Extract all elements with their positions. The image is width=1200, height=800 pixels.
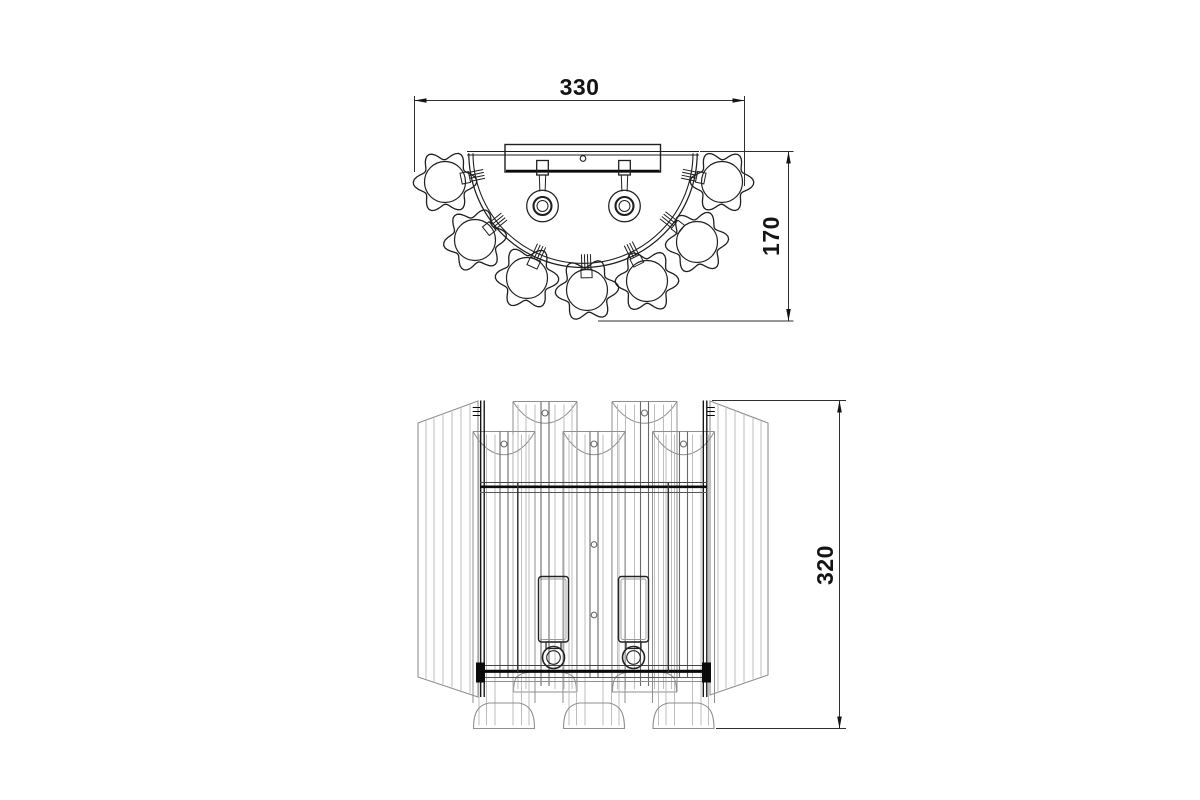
- clamp-tick: [470, 178, 485, 181]
- dimension-arrow: [837, 401, 842, 413]
- shade-bottom-dome: [474, 703, 535, 729]
- clamp-tick: [540, 247, 546, 261]
- mounting-bar: [505, 145, 661, 173]
- socket-stem: [627, 175, 628, 192]
- shade-bottom-dome: [653, 703, 714, 729]
- hanger-hole: [591, 542, 597, 548]
- dimension-label-width: 330: [560, 74, 600, 100]
- socket-stem-block: [619, 161, 631, 176]
- lamp-socket-ring: [616, 197, 634, 215]
- hanger-hole: [501, 441, 507, 447]
- candle-tube: [619, 577, 649, 643]
- flower-shade: [615, 253, 679, 310]
- candle-tube-inner: [541, 579, 566, 640]
- flower-shade-opening: [425, 162, 466, 203]
- clamp-tick: [470, 175, 485, 178]
- lamp-socket-inner: [537, 201, 548, 212]
- clamp-tick: [681, 178, 696, 181]
- pleated-shade-outer_right: [710, 401, 768, 695]
- bar-end-cap: [702, 663, 711, 683]
- shade-bottom-dome: [564, 703, 625, 729]
- mounting-hole: [580, 156, 586, 162]
- lamp-socket-ring: [534, 197, 552, 215]
- flower-shade-opening: [567, 270, 608, 311]
- flower-shade-opening: [627, 261, 668, 302]
- clamp-tick: [537, 246, 543, 260]
- hanger-hole: [681, 441, 687, 447]
- bar-end-cap: [476, 663, 485, 683]
- dimension-arrow: [415, 98, 427, 103]
- dimension-arrow: [733, 98, 745, 103]
- dimension-arrow: [786, 309, 791, 321]
- dimension-label-height: 320: [812, 545, 838, 585]
- hanger-hole: [542, 410, 548, 416]
- flower-shade-opening: [455, 220, 496, 261]
- flower-shade-opening: [702, 162, 743, 203]
- dimension-label-depth: 170: [758, 216, 784, 256]
- hanger-hole: [642, 410, 648, 416]
- front-view: [418, 401, 768, 729]
- socket-stem-block: [537, 161, 549, 176]
- socket-stem: [621, 175, 622, 192]
- dimension-arrow: [837, 717, 842, 729]
- hanger-hole: [591, 612, 597, 618]
- socket-stem: [545, 175, 546, 192]
- dimension-arrow: [786, 152, 791, 164]
- bulb-holder-inner: [627, 651, 641, 665]
- pleated-shade-outer_left: [418, 401, 478, 697]
- lamp-socket-inner: [619, 201, 630, 212]
- lamp-socket-outer: [609, 190, 641, 222]
- top-view: [413, 145, 754, 320]
- drawing-canvas: 330 170 320: [0, 0, 1200, 800]
- technical-drawing: 330 170 320: [0, 0, 1200, 800]
- clamp-body: [695, 171, 706, 183]
- socket-stem: [539, 175, 540, 192]
- lamp-socket-outer: [527, 190, 559, 222]
- hanger-hole: [591, 441, 597, 447]
- clamp-tick: [682, 172, 697, 175]
